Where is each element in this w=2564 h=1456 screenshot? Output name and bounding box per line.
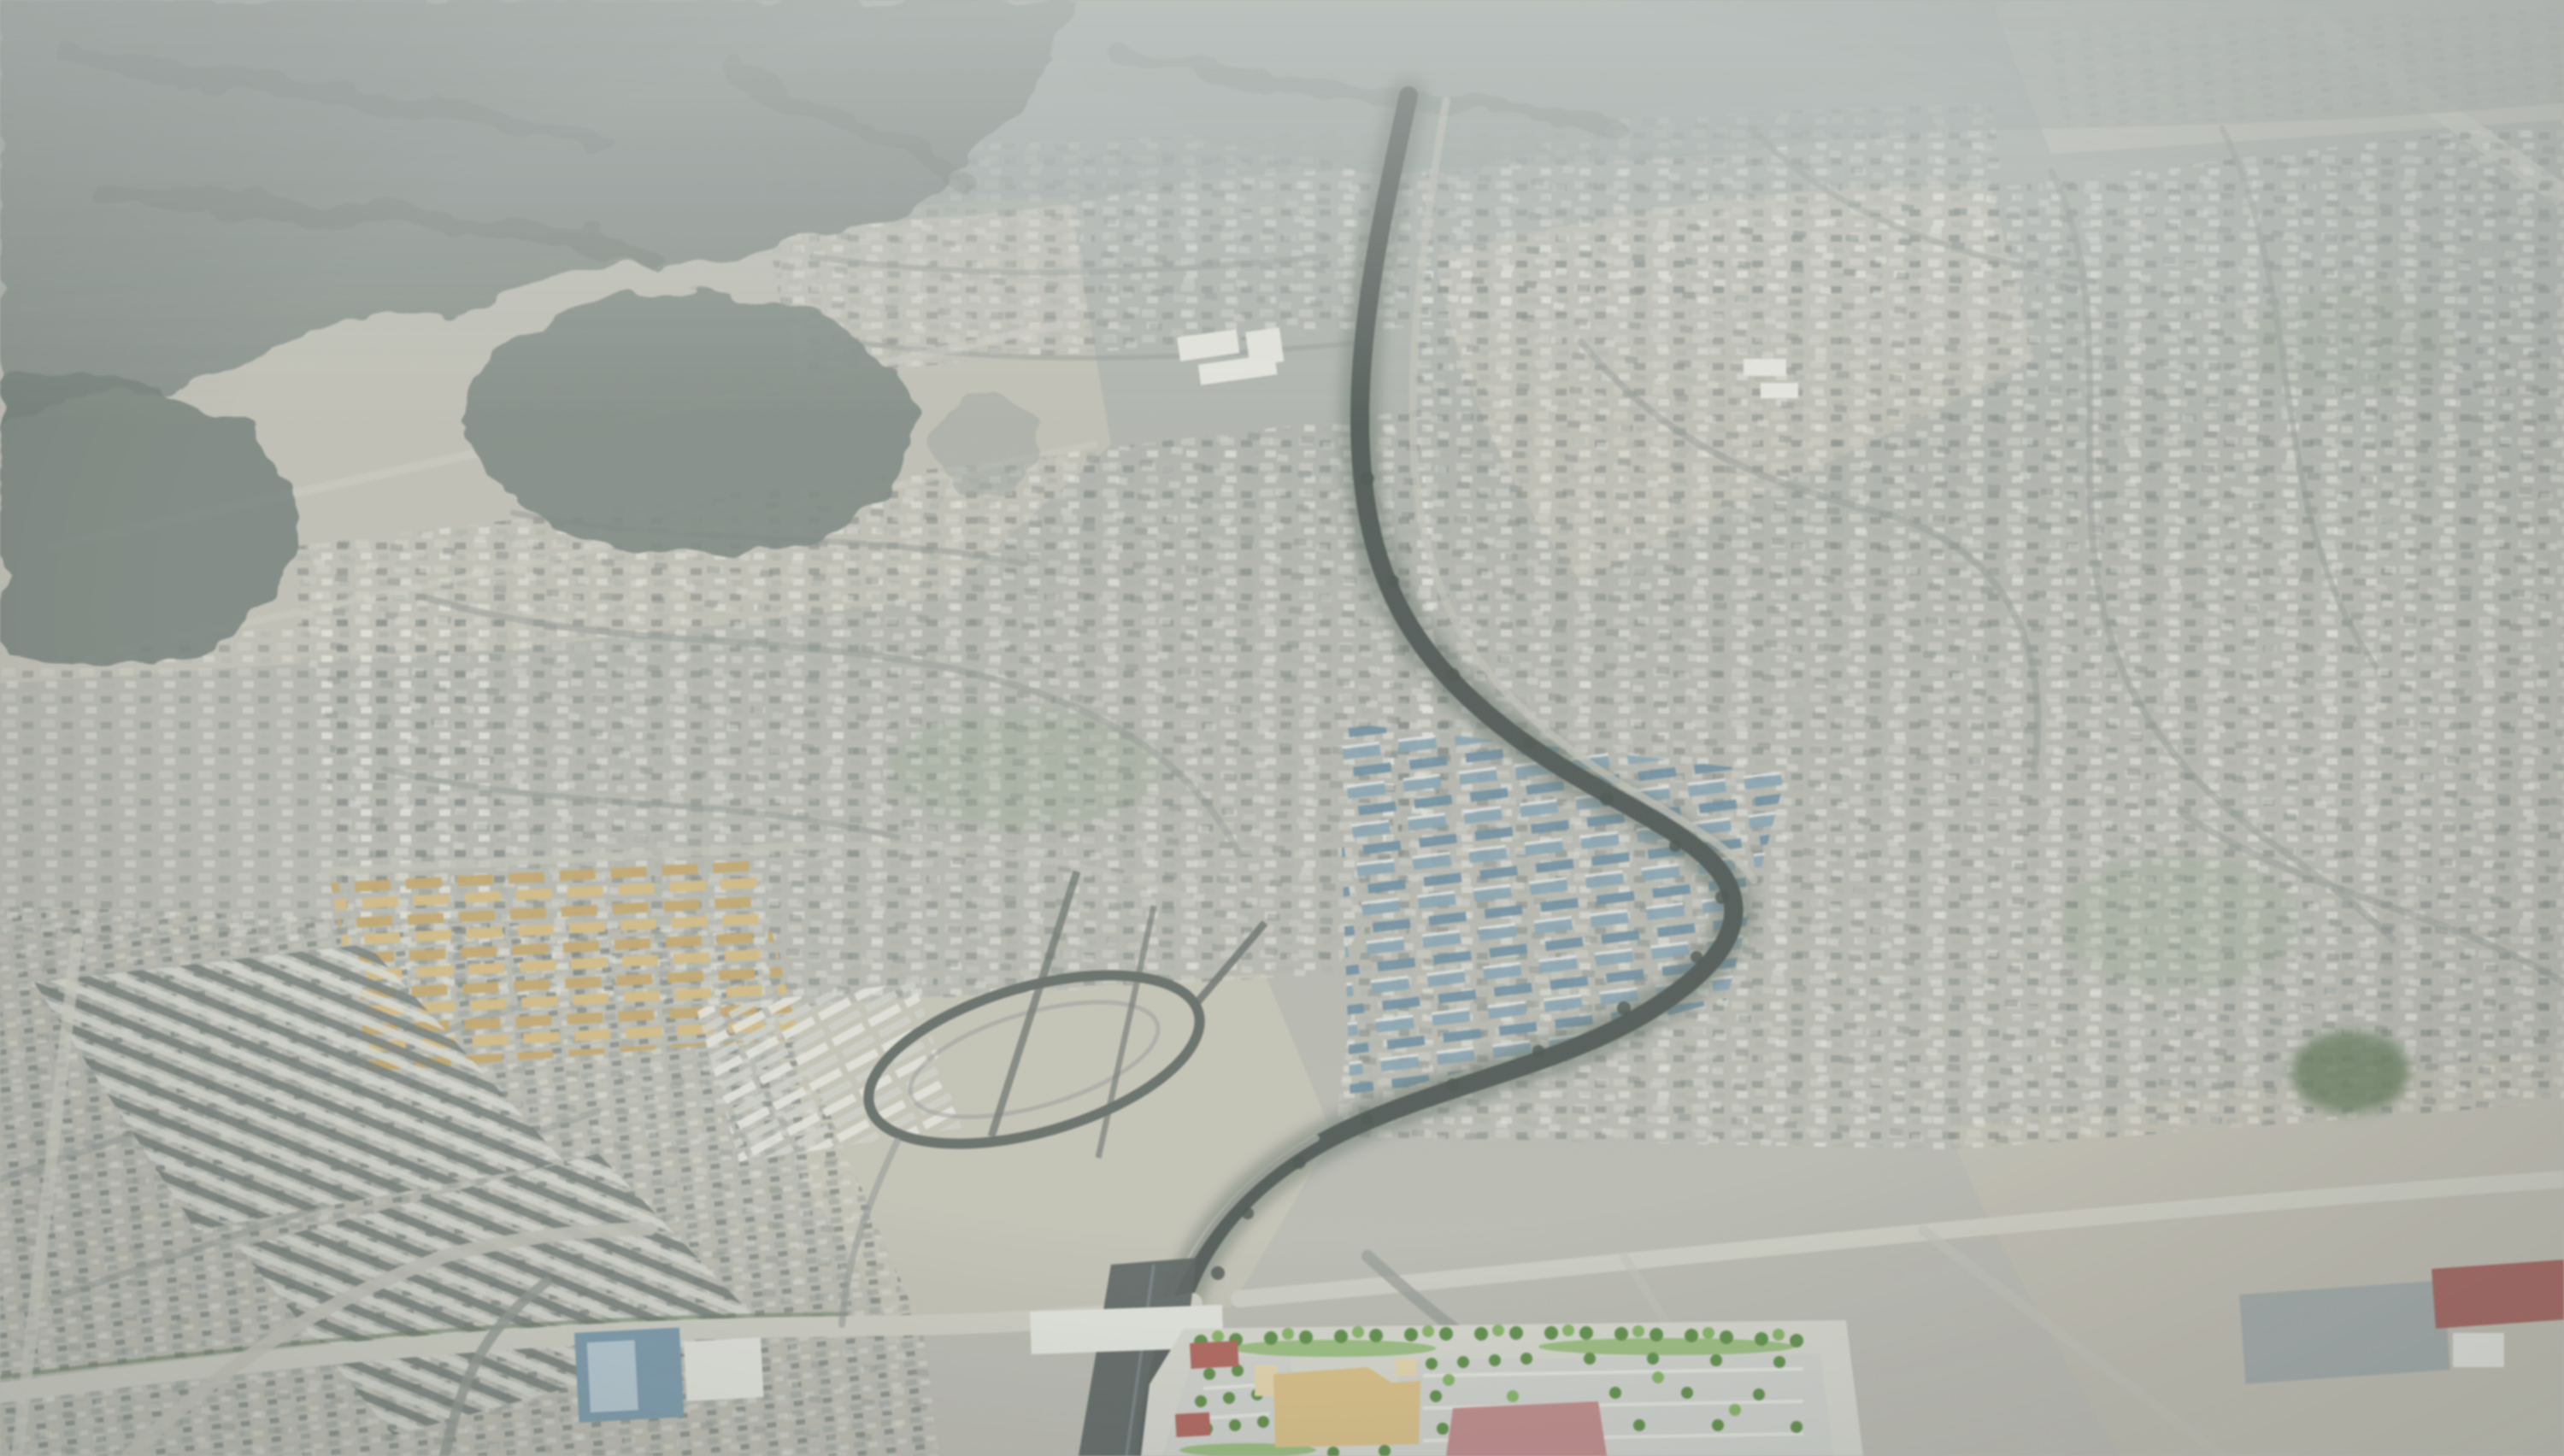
aerial-photo-canvas	[0, 0, 2564, 1456]
grain-overlay	[0, 0, 2564, 1456]
aerial-photo	[0, 0, 2564, 1456]
